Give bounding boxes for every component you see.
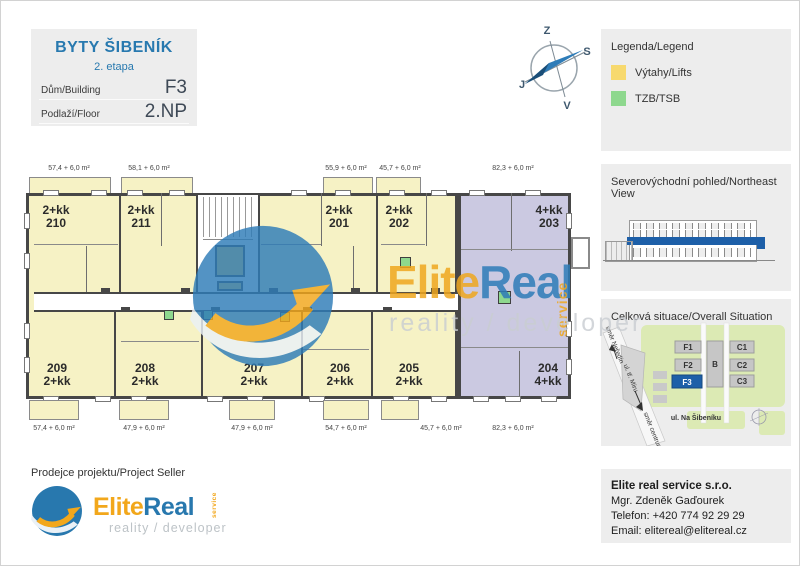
unit-202-label: 2+kk202 xyxy=(367,204,431,230)
street-label: ul. Na Šibeníku xyxy=(671,413,721,422)
partition xyxy=(121,341,199,342)
elevation-window-row xyxy=(633,223,751,229)
window-mark xyxy=(541,396,557,402)
partition xyxy=(461,347,568,348)
watermark-wordmark: EliteReal xyxy=(387,255,572,309)
elevation-ground-line xyxy=(603,260,775,261)
tzb-room xyxy=(164,310,174,320)
building-label: Dům/Building xyxy=(41,85,100,96)
company-name: Elite real service s.r.o. xyxy=(611,469,791,492)
partition xyxy=(511,193,512,251)
page: BYTY ŠIBENÍK 2. etapa Dům/Building F3 Po… xyxy=(0,0,800,566)
partition xyxy=(86,246,87,292)
contact-email: Email: elitereal@elitereal.cz xyxy=(611,525,791,537)
area-label: 82,3 + 6,0 m² xyxy=(478,165,548,172)
area-label: 57,4 + 6,0 m² xyxy=(19,425,89,432)
elitereal-logo-icon xyxy=(31,485,83,537)
brand-tagline: reality / developer xyxy=(109,521,227,535)
legend-item-lifts: Výtahy/Lifts xyxy=(635,67,692,79)
unit-210-label: 2+kk210 xyxy=(25,204,87,230)
svg-text:F3: F3 xyxy=(682,378,692,387)
pier xyxy=(181,288,190,293)
svg-text:F1: F1 xyxy=(683,343,693,352)
svg-text:C1: C1 xyxy=(737,343,748,352)
compass-label-west: Z xyxy=(544,25,551,37)
brand-service-vertical: service xyxy=(211,492,218,518)
unit-208-label: 2082+kk xyxy=(113,362,177,388)
svg-text:F2: F2 xyxy=(683,361,693,370)
window-mark xyxy=(169,190,185,196)
unit-203-label: 4+kk203 xyxy=(517,204,581,230)
partition xyxy=(34,244,118,245)
unit-211-label: 2+kk211 xyxy=(109,204,173,230)
area-label: 47,9 + 6,0 m² xyxy=(217,425,287,432)
window-mark xyxy=(43,190,59,196)
partition xyxy=(381,244,425,245)
brand-real: Real xyxy=(143,493,194,521)
partition xyxy=(353,246,354,292)
northeast-view-title: Severovýchodní pohled/Northeast View xyxy=(611,176,791,200)
stage-label: 2. etapa xyxy=(31,61,197,73)
seller-heading: Prodejce projektu/Project Seller xyxy=(31,467,185,479)
unit-204-label: 2044+kk xyxy=(516,362,580,388)
window-mark xyxy=(431,190,447,196)
window-mark xyxy=(473,396,489,402)
side-loggia xyxy=(571,237,590,269)
elevation-annex xyxy=(605,241,633,262)
road xyxy=(701,323,706,423)
area-label: 47,9 + 6,0 m² xyxy=(109,425,179,432)
contact-person: Mgr. Zdeněk Gaďourek xyxy=(611,495,791,507)
lifts-color-swatch xyxy=(611,65,626,80)
svg-text:C2: C2 xyxy=(737,361,748,370)
svg-text:B: B xyxy=(712,360,718,369)
area-label: 54,7 + 6,0 m² xyxy=(311,425,381,432)
contact-phone: Telefon: +420 774 92 29 29 xyxy=(611,510,791,522)
brand-elite: Elite xyxy=(93,493,143,521)
road xyxy=(724,323,729,423)
highlighted-floor-band-end xyxy=(757,237,765,249)
elevation-window-row xyxy=(633,230,751,237)
contact-panel: Elite real service s.r.o. Mgr. Zdeněk Ga… xyxy=(601,469,791,543)
window-mark xyxy=(469,190,485,196)
legend-title: Legenda/Legend xyxy=(611,41,694,53)
floor-value: 2.NP xyxy=(145,101,187,123)
window-mark xyxy=(24,253,30,269)
unit-209-label: 2092+kk xyxy=(26,362,88,388)
window-mark xyxy=(207,396,223,402)
balcony xyxy=(381,400,419,420)
svg-text:C3: C3 xyxy=(737,377,748,386)
window-mark xyxy=(431,396,447,402)
title-block: BYTY ŠIBENÍK 2. etapa Dům/Building F3 Po… xyxy=(31,29,197,126)
balcony xyxy=(29,400,79,420)
watermark-tagline: reality / developer xyxy=(389,309,643,338)
legend-item-tzb: TZB/TSB xyxy=(635,93,680,105)
building-row: Dům/Building F3 xyxy=(39,75,189,100)
balcony xyxy=(229,400,275,420)
building-value: F3 xyxy=(165,77,187,99)
window-mark xyxy=(505,396,521,402)
unit-205-label: 2052+kk xyxy=(377,362,441,388)
window-mark xyxy=(95,396,111,402)
pier xyxy=(121,307,130,312)
window-mark xyxy=(24,323,30,339)
floor-label: Podlaží/Floor xyxy=(41,109,100,120)
area-label: 58,1 + 6,0 m² xyxy=(114,165,184,172)
compass-label-east: V xyxy=(563,100,571,111)
elevation-window-row xyxy=(633,248,751,257)
balcony xyxy=(323,400,369,420)
situation-map: F1 F2 F3 B C1 C2 C3 ul. Na Šibeníku směr… xyxy=(601,319,791,446)
pier xyxy=(351,288,360,293)
compass-icon: Z S J V xyxy=(513,19,593,111)
compass-label-south: J xyxy=(519,79,525,91)
balcony xyxy=(119,400,169,420)
window-mark xyxy=(389,190,405,196)
area-label: 45,7 + 6,0 m² xyxy=(365,165,435,172)
legend-panel: Legenda/Legend Výtahy/Lifts TZB/TSB xyxy=(601,29,791,151)
northeast-view-panel: Severovýchodní pohled/Northeast View xyxy=(601,164,791,291)
floor-row: Podlaží/Floor 2.NP xyxy=(39,99,189,124)
window-mark xyxy=(127,190,143,196)
tzb-color-swatch xyxy=(611,91,626,106)
area-label: 45,7 + 6,0 m² xyxy=(406,425,476,432)
partition xyxy=(461,249,568,250)
pier xyxy=(101,288,110,293)
area-label: 57,4 + 6,0 m² xyxy=(34,165,104,172)
project-title: BYTY ŠIBENÍK xyxy=(31,39,197,57)
window-mark xyxy=(525,190,541,196)
watermark-logo-icon xyxy=(190,223,336,369)
window-mark xyxy=(291,190,307,196)
area-label: 82,3 + 6,0 m² xyxy=(478,425,548,432)
highlighted-floor-band xyxy=(627,237,763,245)
window-mark xyxy=(91,190,107,196)
brand-wordmark: EliteReal xyxy=(93,493,194,522)
compass-label-north: S xyxy=(583,46,590,58)
window-mark xyxy=(335,190,351,196)
